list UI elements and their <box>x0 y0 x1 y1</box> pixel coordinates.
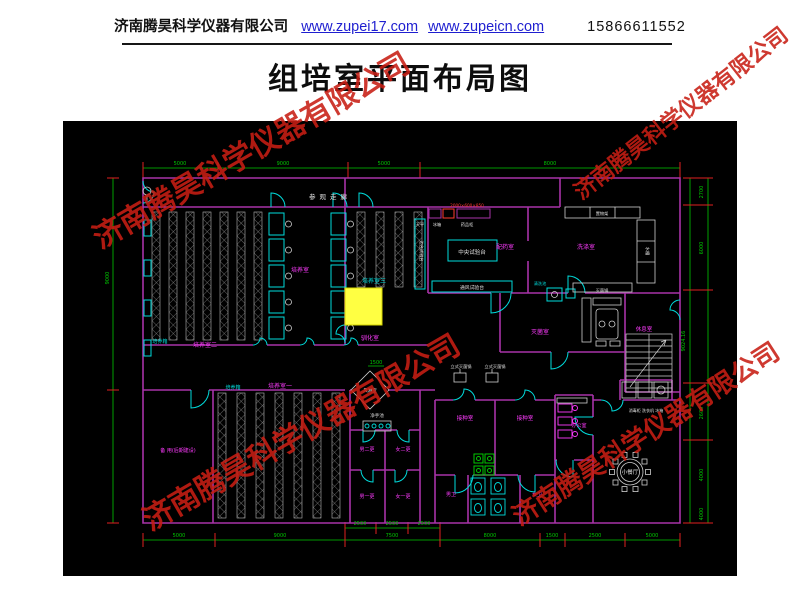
room-label: 2000×600×850 <box>450 203 484 208</box>
floorplan-svg: 参观走廊培养室培养室二培养箱培养室三驯化室培养室一培养箱备 用(后期建设)配药室… <box>63 121 737 576</box>
cabinet-row <box>429 209 490 218</box>
room-label: 培养室二 <box>193 341 217 349</box>
room-label: 女二更 <box>395 446 410 453</box>
room-label: 小餐厅 <box>622 468 639 476</box>
floorplan-drawing: 参观走廊培养室培养室二培养箱培养室三驯化室培养室一培养箱备 用(后期建设)配药室… <box>63 121 737 576</box>
dimension-label: 4000 <box>699 508 705 521</box>
room-label: 药品柜 <box>461 221 474 228</box>
dimension-label: 2500 <box>418 521 431 527</box>
room-label: 女卫 <box>532 491 542 498</box>
room-label: 立式灭菌锅 <box>451 363 472 370</box>
dimension-label: 9000 <box>277 161 290 167</box>
room-label: 配药室 <box>496 243 514 251</box>
room-label: 洗涤室 <box>577 243 595 251</box>
room-label: 中央试验台 <box>458 248 486 256</box>
dimension-label: 4000 <box>699 469 705 482</box>
dimension-label: 1500 <box>546 533 559 539</box>
room-label: 男一更 <box>359 494 374 500</box>
dimension-label: 9024.16 <box>681 331 687 352</box>
room-label: 接种室 <box>457 414 474 422</box>
page: 济南腾昊科学仪器有限公司 www.zupei17.com www.zupeicn… <box>0 0 800 600</box>
room-label: 水槽 <box>644 247 651 256</box>
header: 济南腾昊科学仪器有限公司 www.zupei17.com www.zupeicn… <box>0 15 800 36</box>
staircase <box>626 334 672 392</box>
room-label: 灭菌室 <box>531 328 549 336</box>
dimension-label: 9000 <box>105 272 111 285</box>
clean-bench-units <box>474 454 494 475</box>
room-label: 备 用(后期建设) <box>160 447 196 454</box>
dimension-label: 9000 <box>274 533 287 539</box>
link-zupeicn[interactable]: www.zupeicn.com <box>428 19 544 35</box>
dimension-label: 6000 <box>699 242 705 255</box>
link-zupei17[interactable]: www.zupei17.com <box>301 19 418 35</box>
room-label: 边台试验台 <box>418 241 425 262</box>
dimension-label: 5000 <box>174 161 187 167</box>
room-label: 灭菌锅 <box>596 287 609 294</box>
dimension-label: 2500 <box>589 533 602 539</box>
room-label: 立式灭菌锅 <box>485 363 506 370</box>
dimension-lines <box>113 168 708 540</box>
room-label: 培养室一 <box>268 382 292 390</box>
room-label: 培养室三 <box>362 277 386 285</box>
room-label: 培养箱 <box>152 338 167 345</box>
room-label: 培养箱 <box>225 384 240 391</box>
room-label: 通风试验台 <box>460 284 484 291</box>
header-divider <box>122 43 672 45</box>
room-label: 培养室 <box>291 266 309 274</box>
office-desks <box>558 404 578 438</box>
room-labels: 参观走廊培养室培养室二培养箱培养室三驯化室培养室一培养箱备 用(后期建设)配药室… <box>152 192 663 500</box>
dimension-label: 2600 <box>699 407 705 420</box>
room-label: 置物架 <box>596 210 609 217</box>
company-name: 济南腾昊科学仪器有限公司 <box>114 19 288 35</box>
room-label: 男二更 <box>359 447 374 453</box>
room-label: 休息室 <box>636 325 653 333</box>
room-label: 清洗池 <box>534 280 547 287</box>
room-label: 参观走廊 <box>309 192 351 201</box>
dimension-label: 7500 <box>386 533 399 539</box>
room-label: 接种室 <box>517 414 534 422</box>
room-label: 风淋室 <box>363 387 377 394</box>
dimension-label: 2500 <box>354 521 367 527</box>
lab-benches <box>415 219 575 301</box>
dimension-label: 8000 <box>484 533 497 539</box>
room-label: 办公室 <box>571 422 586 429</box>
dimension-label: 2500 <box>386 521 399 527</box>
room-label: 净手池 <box>370 412 384 419</box>
dimension-label: 5000 <box>646 533 659 539</box>
room-label: 驯化室 <box>361 334 379 342</box>
dimension-label: 1500 <box>370 360 383 366</box>
room-label: 冰箱 <box>433 221 441 228</box>
dimension-label: 5000 <box>173 533 186 539</box>
dimension-label: 2700 <box>699 186 705 199</box>
dimension-label: 8000 <box>544 161 557 167</box>
highlight-box <box>345 288 382 325</box>
page-title: 组培室平面布局图 <box>0 54 800 98</box>
phone-number: 15866611552 <box>587 19 686 35</box>
dimension-label: 5000 <box>378 161 391 167</box>
room-label: 男卫 <box>446 492 456 498</box>
room-label: 女一更 <box>395 493 410 500</box>
room-label: 消毒柜 洗衣机 冰箱 <box>629 407 664 413</box>
